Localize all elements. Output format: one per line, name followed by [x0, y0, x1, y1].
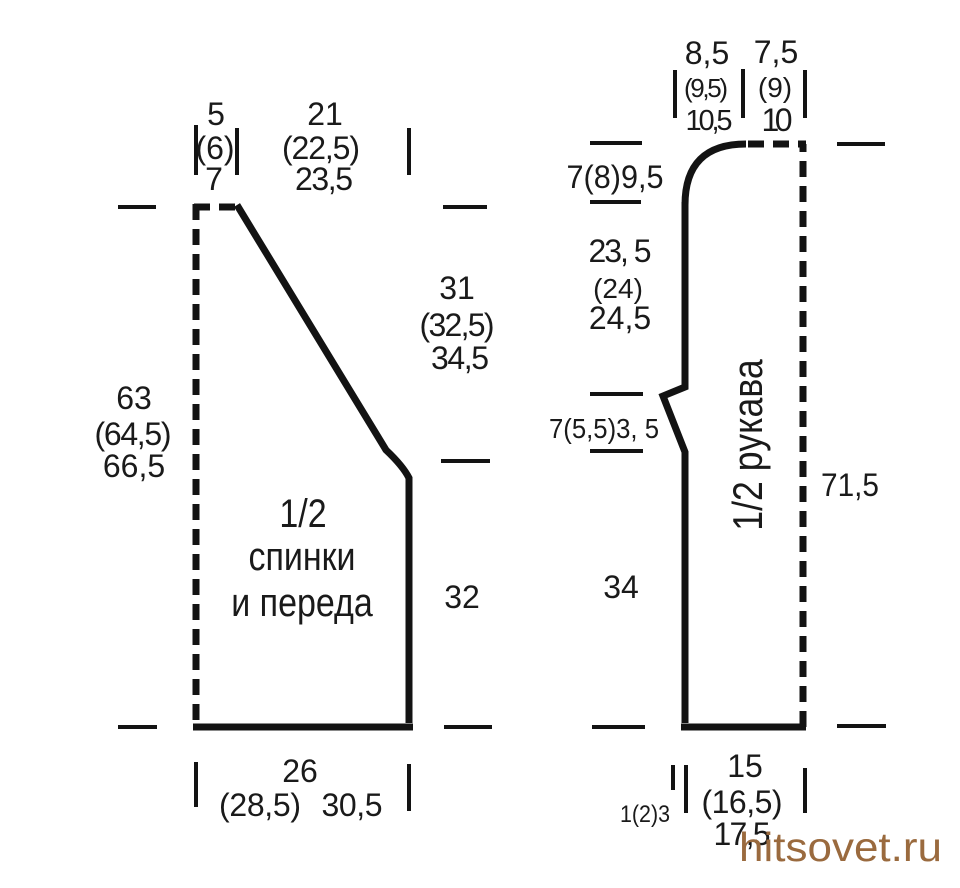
svg-text:1(2)3: 1(2)3: [620, 801, 670, 828]
svg-text:(9,5): (9,5): [684, 73, 728, 103]
svg-text:(16,5): (16,5): [702, 784, 783, 820]
svg-text:24,5: 24,5: [589, 300, 651, 336]
svg-text:hitsovet.ru: hitsovet.ru: [739, 824, 942, 870]
svg-text:спинки: спинки: [248, 533, 355, 578]
svg-text:(28,5): (28,5): [219, 787, 301, 823]
svg-text:и переда: и переда: [231, 579, 373, 624]
svg-text:15: 15: [727, 748, 763, 784]
svg-text:(9): (9): [758, 72, 792, 103]
svg-text:7(5,5)3, 5: 7(5,5)3, 5: [549, 413, 659, 444]
svg-text:23, 5: 23, 5: [589, 233, 652, 269]
svg-text:31: 31: [439, 270, 475, 306]
svg-text:34,5: 34,5: [431, 340, 489, 376]
svg-text:1/2: 1/2: [279, 490, 326, 535]
svg-text:7: 7: [205, 161, 223, 197]
svg-text:5: 5: [207, 96, 225, 132]
svg-text:10,5: 10,5: [686, 105, 733, 137]
svg-text:66,5: 66,5: [103, 448, 165, 484]
svg-text:30,5: 30,5: [322, 787, 383, 823]
svg-text:8,5: 8,5: [685, 35, 729, 71]
svg-text:26: 26: [282, 753, 318, 789]
svg-text:71,5: 71,5: [821, 467, 879, 503]
svg-text:(64,5): (64,5): [95, 416, 172, 452]
svg-text:1/2 рукава: 1/2 рукава: [725, 359, 771, 531]
svg-text:(32,5): (32,5): [420, 307, 495, 343]
svg-text:32: 32: [444, 579, 480, 615]
svg-text:7(8)9,5: 7(8)9,5: [567, 159, 664, 195]
svg-text:7,5: 7,5: [754, 34, 798, 70]
svg-text:63: 63: [116, 380, 152, 416]
svg-text:10: 10: [762, 102, 793, 138]
svg-text:21: 21: [307, 96, 343, 132]
svg-text:23,5: 23,5: [295, 161, 353, 197]
svg-text:34: 34: [603, 569, 639, 605]
